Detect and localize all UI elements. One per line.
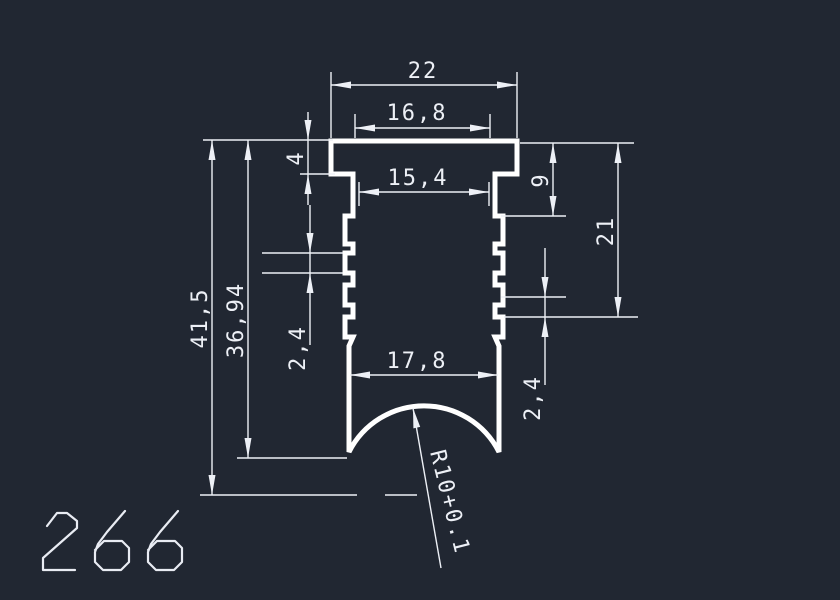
dim-left-tooth-pitch-label: 2,4 <box>286 325 311 371</box>
dim-cap-height-label: 4 <box>284 150 309 165</box>
dim-right-tooth-pitch-label: 2,4 <box>521 375 546 421</box>
dim-cap-width-label: 16,8 <box>387 101 448 126</box>
dim-serration-zone-label: 21 <box>594 216 619 247</box>
cad-viewport: 22 16,8 15,4 4 41,5 36,94 2,4 9 <box>0 0 840 600</box>
dim-shoulder-height-label: 9 <box>529 172 554 187</box>
dim-bottom-width-label: 17,8 <box>387 349 448 374</box>
dim-neck-width-label: 15,4 <box>388 166 449 191</box>
drawing-background <box>0 0 840 600</box>
dim-overall-width-label: 22 <box>408 59 439 84</box>
dim-overall-height-label: 41,5 <box>188 288 213 349</box>
technical-drawing: 22 16,8 15,4 4 41,5 36,94 2,4 9 <box>0 0 840 600</box>
dim-inner-height-label: 36,94 <box>224 282 249 358</box>
